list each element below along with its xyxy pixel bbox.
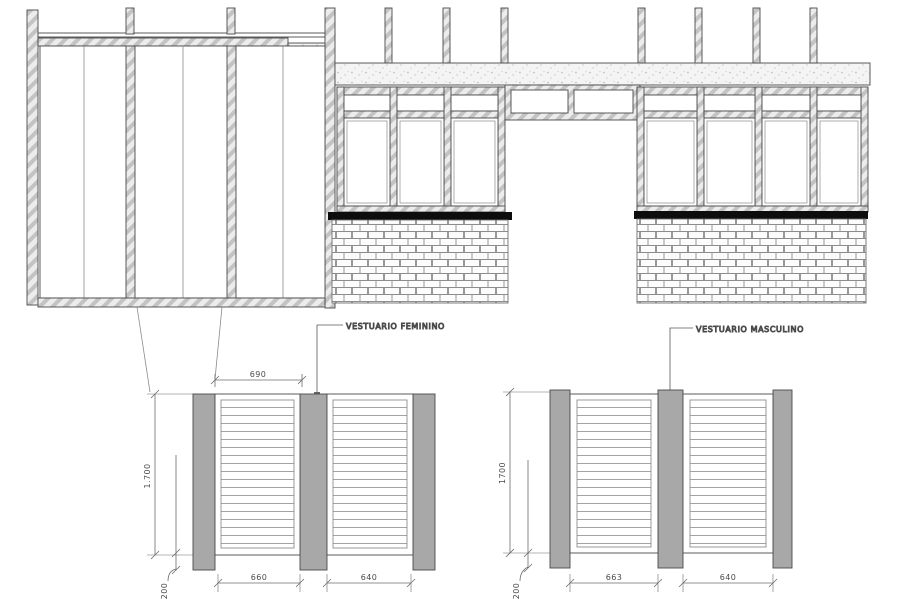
window-pane: [451, 118, 498, 206]
louver-panel: [333, 400, 407, 548]
louver-panel: [690, 400, 766, 547]
window-pane: [762, 118, 810, 206]
panel-field-outline: [40, 46, 325, 298]
transom-pane: [704, 95, 755, 111]
feminino-label-callout: VESTUARIO FEMININO: [314, 322, 445, 397]
dim-text-1700: 1.700: [143, 464, 152, 489]
leader-line: [137, 307, 150, 392]
elevation-detail-leaders: [137, 307, 222, 392]
transom-pane: [817, 95, 861, 111]
dim-text-640: 640: [720, 573, 736, 582]
transom-pane: [762, 95, 810, 111]
transom-bar: [344, 111, 390, 118]
window-mullion: [337, 87, 344, 212]
window-group-right: [634, 87, 868, 303]
louver-panel: [577, 400, 651, 547]
window-mullion: [861, 87, 868, 212]
frame-post: [550, 390, 570, 568]
wall-elevation: [27, 8, 870, 392]
transom-bar: [817, 111, 861, 118]
feminino-height-dimension: 1.700: [143, 390, 196, 559]
interior-post: [126, 46, 135, 298]
window-mullion: [498, 87, 505, 212]
transom-pane: [574, 90, 633, 113]
brick-wall-left: [332, 220, 508, 303]
window-pane: [397, 118, 444, 206]
feminino-doors: [193, 394, 435, 570]
rafter-post: [385, 8, 392, 63]
window-pane: [644, 118, 697, 206]
window-mullion: [810, 87, 817, 212]
transom-pane: [644, 95, 697, 111]
detail-label: VESTUARIO MASCULINO: [696, 325, 804, 334]
feminino-base-dimension: 200: [160, 455, 180, 599]
dim-text-663: 663: [606, 573, 622, 582]
window-sill-left: [328, 212, 512, 220]
window-mullion: [697, 87, 704, 212]
roof-stud: [227, 8, 235, 34]
window-head-band: [337, 87, 505, 95]
transom-bar: [762, 111, 810, 118]
window-mullion: [390, 87, 397, 212]
frame-post: [413, 394, 435, 570]
concrete-beam: [335, 63, 870, 85]
dim-text-690: 690: [250, 370, 266, 379]
dim-text-640: 640: [361, 573, 377, 582]
frame-post: [193, 394, 215, 570]
transom-pane: [397, 95, 444, 111]
elevation-canvas: VESTUARIO FEMININO 690 1.700: [0, 0, 900, 600]
dim-text-200: 200: [512, 583, 521, 599]
masculino-doors: [550, 390, 792, 568]
frame-post: [300, 394, 327, 570]
window-pane: [704, 118, 755, 206]
masculino-height-dimension: 1700: [498, 388, 552, 557]
top-cap-beam: [38, 33, 335, 37]
architectural-drawing-sheet: VESTUARIO FEMININO 690 1.700: [0, 0, 900, 600]
transom-bar: [451, 111, 498, 118]
roof-stud: [126, 8, 134, 34]
rafter-post: [443, 8, 450, 63]
paneled-wall-section: [27, 8, 335, 308]
top-hatch-band: [38, 38, 288, 46]
masculino-base-dimension: 200: [512, 460, 532, 599]
dim-text-1700: 1700: [498, 462, 507, 484]
detail-vestuario-feminino: VESTUARIO FEMININO 690 1.700: [143, 322, 445, 599]
window-sill-right: [634, 211, 868, 219]
frame-post: [773, 390, 792, 568]
detail-label: VESTUARIO FEMININO: [346, 322, 445, 331]
dim-text-200: 200: [160, 583, 169, 599]
label-leader: [317, 325, 343, 393]
brick-wall-right: [637, 219, 866, 303]
window-bottom-bar: [337, 206, 505, 212]
leader-line: [215, 307, 222, 379]
transom-bar: [644, 111, 697, 118]
transom-bar: [704, 111, 755, 118]
feminino-width-dimension: 690: [211, 370, 306, 387]
dim-text-660: 660: [251, 573, 267, 582]
window-head-band: [637, 87, 868, 95]
label-leader: [670, 328, 693, 392]
feminino-door-dimensions: 660 640: [214, 573, 415, 592]
window-pane: [344, 118, 390, 206]
bottom-hatch-band: [38, 298, 325, 307]
rafter-post: [695, 8, 702, 63]
masculino-label-callout: VESTUARIO MASCULINO: [667, 325, 804, 396]
left-column-post: [27, 10, 38, 305]
transom-pane: [451, 95, 498, 111]
window-mullion: [755, 87, 762, 212]
transom-bar: [397, 111, 444, 118]
window-mullion: [444, 87, 451, 212]
window-pane: [817, 118, 861, 206]
masculino-door-dimensions: 663 640: [566, 573, 777, 592]
rafter-post: [810, 8, 817, 63]
frame-post: [658, 390, 683, 568]
concrete-beam-assembly: [335, 8, 870, 85]
detail-vestuario-masculino: VESTUARIO MASCULINO 1700 200: [498, 325, 804, 599]
rafter-post: [753, 8, 760, 63]
doorway-transom: [505, 85, 640, 120]
louver-panel: [221, 400, 294, 548]
window-mullion: [637, 87, 644, 212]
rafter-post: [501, 8, 508, 63]
rafter-post: [638, 8, 645, 63]
transom-pane: [511, 90, 568, 113]
window-group-left: [328, 87, 512, 303]
interior-post: [227, 46, 236, 298]
transom-pane: [344, 95, 390, 111]
